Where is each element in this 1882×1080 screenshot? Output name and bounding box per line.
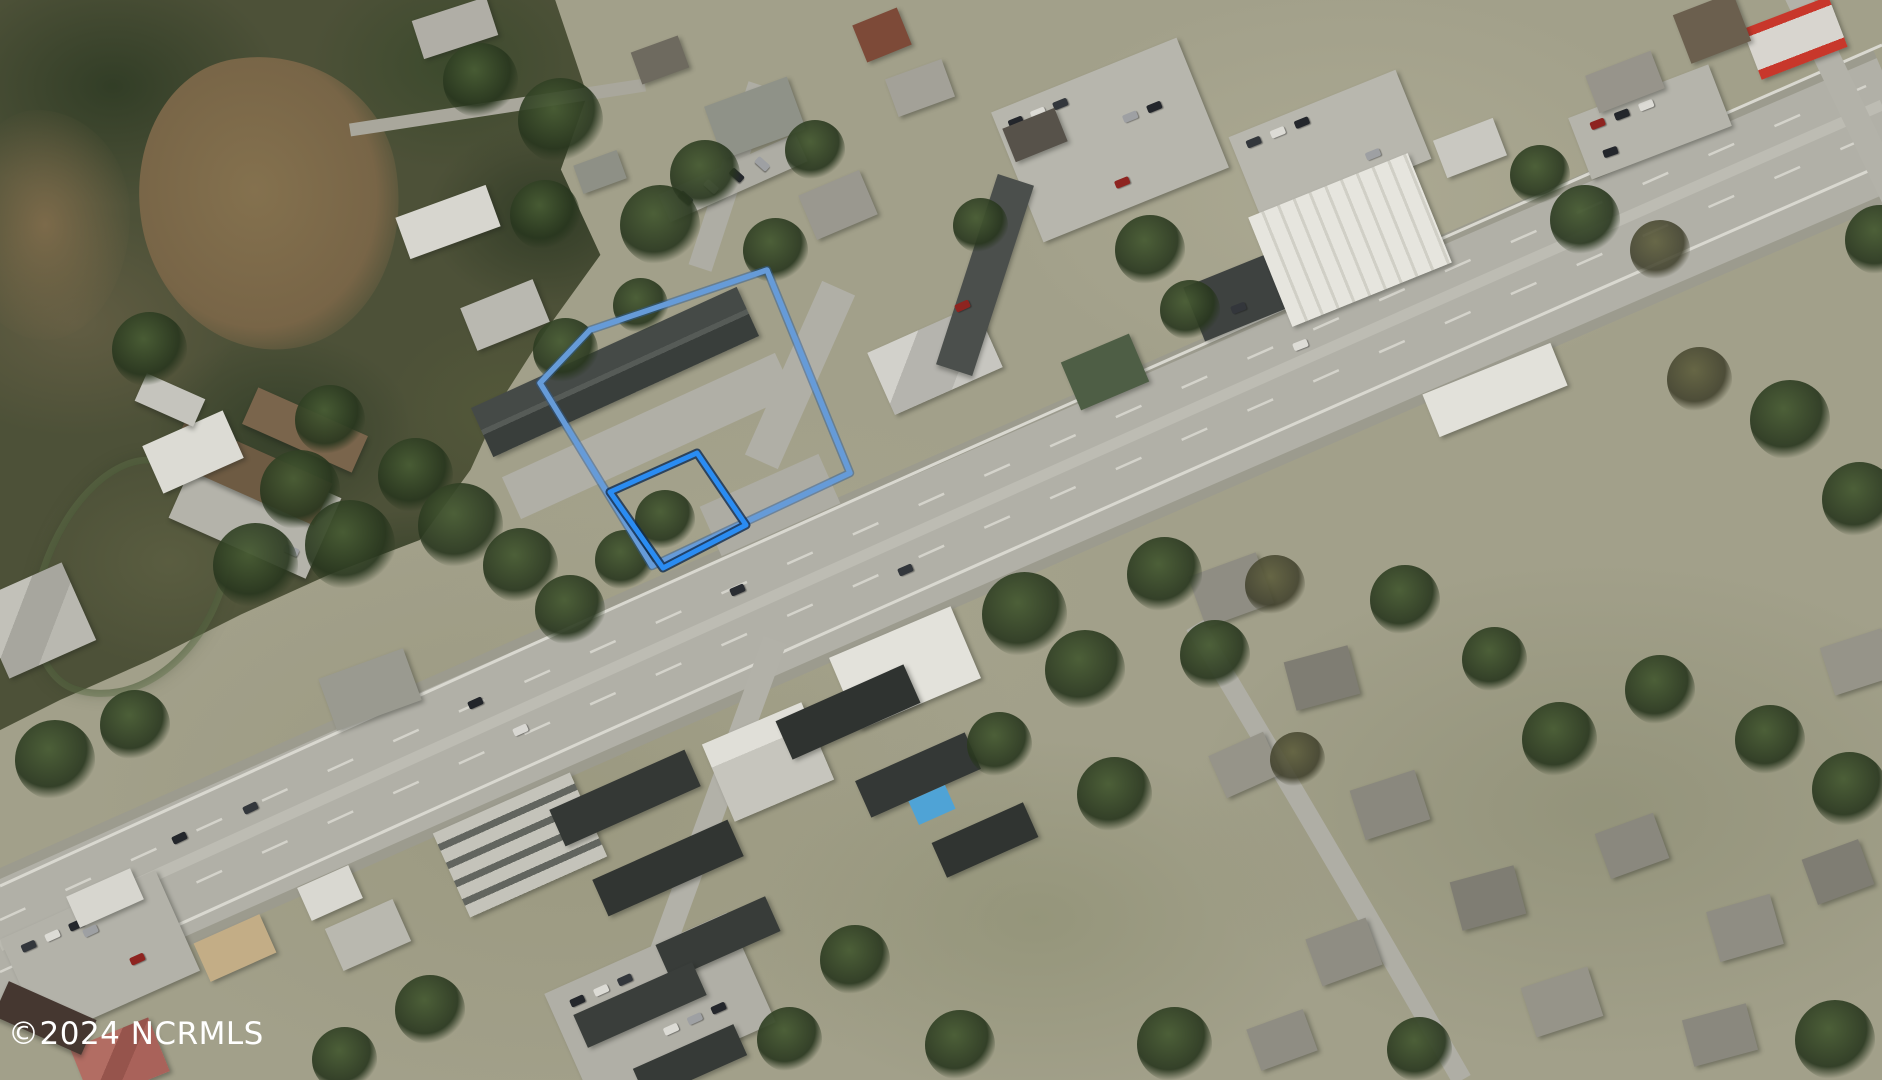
parcel-overlay — [0, 0, 1882, 1080]
large-parcel-outline-underlay — [540, 270, 850, 566]
large-parcel-outline — [540, 270, 850, 566]
copyright-watermark: ©2024 NCRMLS — [8, 1016, 264, 1052]
aerial-photo: ©2024 NCRMLS — [0, 0, 1882, 1080]
